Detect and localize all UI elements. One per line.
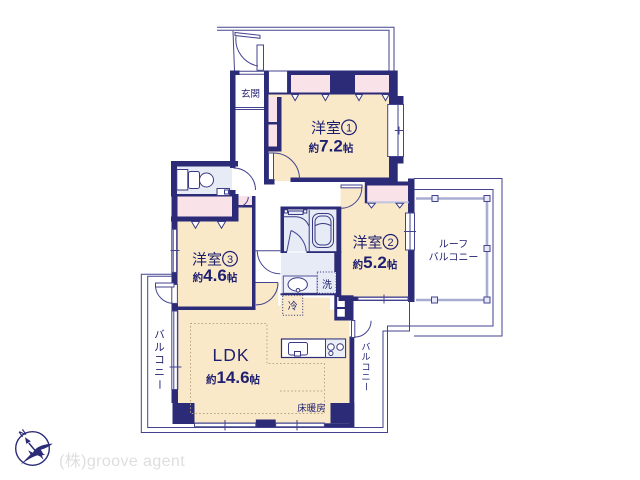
svg-text:ー: ー [153,379,165,390]
svg-text:コ: コ [154,354,165,366]
svg-text:バルコニー: バルコニー [429,252,479,264]
svg-text:洋室: 洋室 [352,235,382,252]
svg-text:洋室: 洋室 [311,120,341,137]
svg-text:ー: ー [361,382,371,391]
svg-text:LDK: LDK [212,345,249,365]
svg-text:冷: 冷 [288,299,298,312]
svg-text:ルーフ: ルーフ [439,240,468,251]
svg-text:玄関: 玄関 [241,88,260,100]
svg-text:ニ: ニ [361,372,370,382]
svg-text:洗: 洗 [322,279,332,291]
svg-text:(株)groove agent: (株)groove agent [59,452,185,470]
svg-text:バ: バ [154,329,165,341]
svg-text:3: 3 [227,254,233,266]
svg-text:ル: ル [361,352,370,362]
svg-text:床暖房: 床暖房 [297,403,326,415]
svg-text:ニ: ニ [154,367,165,379]
svg-text:コ: コ [361,362,370,372]
svg-text:1: 1 [346,123,352,135]
svg-text:2: 2 [387,237,393,249]
svg-text:ル: ル [154,342,165,354]
svg-text:バ: バ [361,342,370,352]
